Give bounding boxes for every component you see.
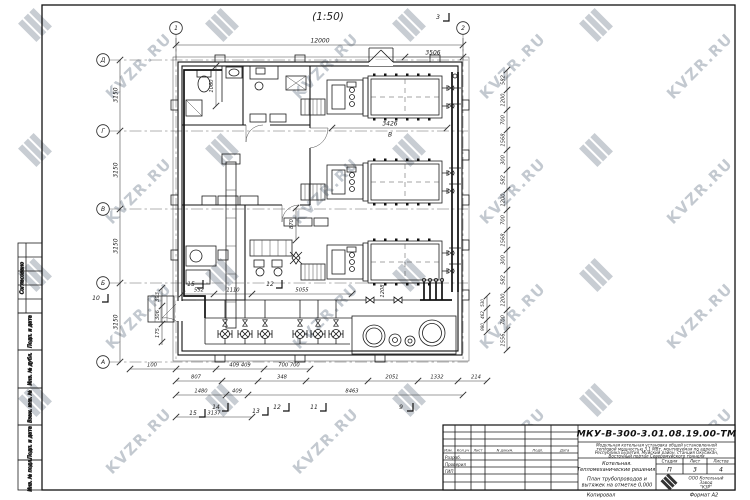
dim-label: 462 — [480, 311, 485, 319]
dim-label: 300 — [501, 154, 507, 165]
grid-bubble: Д — [100, 57, 106, 64]
dim-label: 1110 — [226, 288, 240, 294]
dim-label: 870 — [289, 218, 295, 229]
dim-label: 1556 — [501, 333, 507, 347]
dim-label: 1208 — [380, 284, 386, 298]
dim-label: 409 — [232, 389, 242, 395]
dim-label: 1060 — [209, 79, 215, 93]
doc-number: МКУ-В-300-3.01.08.19.00-ТМ — [577, 429, 737, 440]
dim-label: 1332 — [430, 375, 443, 381]
stage-value: П — [667, 467, 672, 474]
sheets-value: 4 — [719, 467, 723, 474]
drawing-sheet: KVZR.RU Согласовано Подп. и дата Инв. № … — [0, 0, 750, 500]
tb-role: Проверил — [445, 462, 466, 467]
grid-bubble: 1 — [174, 25, 178, 32]
dim-label: 3506 — [425, 50, 440, 57]
object-name: Тепломеханические решения. — [577, 467, 657, 473]
dim-label: 582 — [501, 175, 507, 185]
dim-label: 700 — [501, 114, 507, 125]
title-block: МКУ-В-300-3.01.08.19.00-ТМ Модульная кот… — [443, 425, 736, 490]
side-stamp-label: Инв. № дубл. — [28, 353, 34, 386]
section-marker: 3 — [436, 14, 440, 21]
tb-column: Изм. — [444, 449, 452, 453]
dim-label: 214 — [471, 375, 481, 381]
tb-column: N докум. — [497, 449, 514, 453]
dim-label: 100 — [147, 363, 158, 369]
tb-role: Разраб. — [445, 455, 461, 460]
side-stamp-label: Взам. инв. № — [28, 390, 34, 423]
section-marker: 10 — [92, 295, 100, 302]
section-marker: 11 — [310, 404, 318, 411]
dim-label: 980 — [480, 323, 485, 331]
sheet-name: вытяжек на отметке 0,000 — [582, 483, 653, 489]
dim-label: 700 — [501, 214, 507, 225]
format-label: Формат А2 — [690, 493, 718, 499]
side-stamp-label: Согласовано — [20, 262, 26, 294]
grid-bubble: 2 — [461, 25, 465, 32]
side-stamp-label: Подп. и дата — [28, 426, 34, 459]
dim-label: 1200 — [501, 93, 507, 107]
view-mark: В — [388, 132, 392, 139]
tb-column: Дата — [559, 449, 569, 453]
tb-column: Лист — [472, 449, 483, 453]
dim-label: 2051 — [385, 375, 398, 381]
dim-label: 3137 — [207, 411, 221, 417]
dim-label: 3426 — [382, 121, 397, 128]
dim-label: 1200 — [501, 193, 507, 207]
dim-label: 1568 — [501, 133, 507, 147]
company-name: "КЗР" — [700, 485, 712, 490]
dim-label: 8463 — [345, 389, 358, 395]
section-marker: 15 — [189, 410, 197, 417]
dim-label: 306 — [155, 309, 161, 320]
dim-label: 3150 — [113, 238, 120, 253]
section-marker: 12 — [266, 281, 274, 288]
dim-label: 348 — [277, 375, 288, 381]
dim-label: 700 700 — [278, 363, 300, 369]
dim-label: 12000 — [310, 38, 329, 45]
section-marker: 9 — [399, 404, 403, 411]
dim-label: 3150 — [113, 314, 120, 329]
dim-label: 300 — [501, 254, 507, 265]
side-stamp-label: Инв. № подл. — [28, 458, 34, 491]
dim-label: 1200 — [501, 293, 507, 307]
dim-label: 5055 — [295, 288, 309, 294]
section-marker: 15 — [187, 281, 195, 288]
dim-label: 807 — [191, 375, 202, 381]
sheet-value: 3 — [693, 467, 697, 474]
grid-bubble: В — [101, 206, 105, 213]
sheets-label: Листов — [712, 459, 729, 464]
dim-label: 700 — [501, 314, 507, 325]
grid-bubble: Б — [101, 280, 105, 287]
section-marker: 12 — [273, 404, 281, 411]
sheet-label: Лист — [689, 459, 701, 464]
section-marker: 14 — [212, 404, 220, 411]
scale-label: (1:50) — [312, 11, 344, 23]
dim-label: 175 — [155, 327, 161, 338]
section-marker: 13 — [252, 408, 260, 415]
dim-label: 582 — [501, 75, 507, 85]
dim-label: 1480 — [194, 389, 208, 395]
dim-label: 1568 — [501, 233, 507, 247]
tb-column: Подп. — [533, 449, 544, 453]
side-stamp-label: Подп. и дата — [28, 315, 34, 348]
dim-label: 3150 — [113, 87, 120, 102]
dim-label: 582 — [501, 275, 507, 285]
tb-role: ГИП — [445, 469, 453, 474]
dim-label: 409 409 — [229, 363, 250, 369]
dim-label: 530 — [480, 299, 485, 307]
copied-label: Копировал — [587, 493, 616, 499]
dim-label: 393 — [155, 292, 161, 302]
tb-column: Кол.уч — [457, 449, 469, 453]
grid-bubble: А — [100, 359, 105, 366]
stage-label: Стадия — [662, 459, 678, 464]
dim-label: 3150 — [113, 162, 120, 177]
